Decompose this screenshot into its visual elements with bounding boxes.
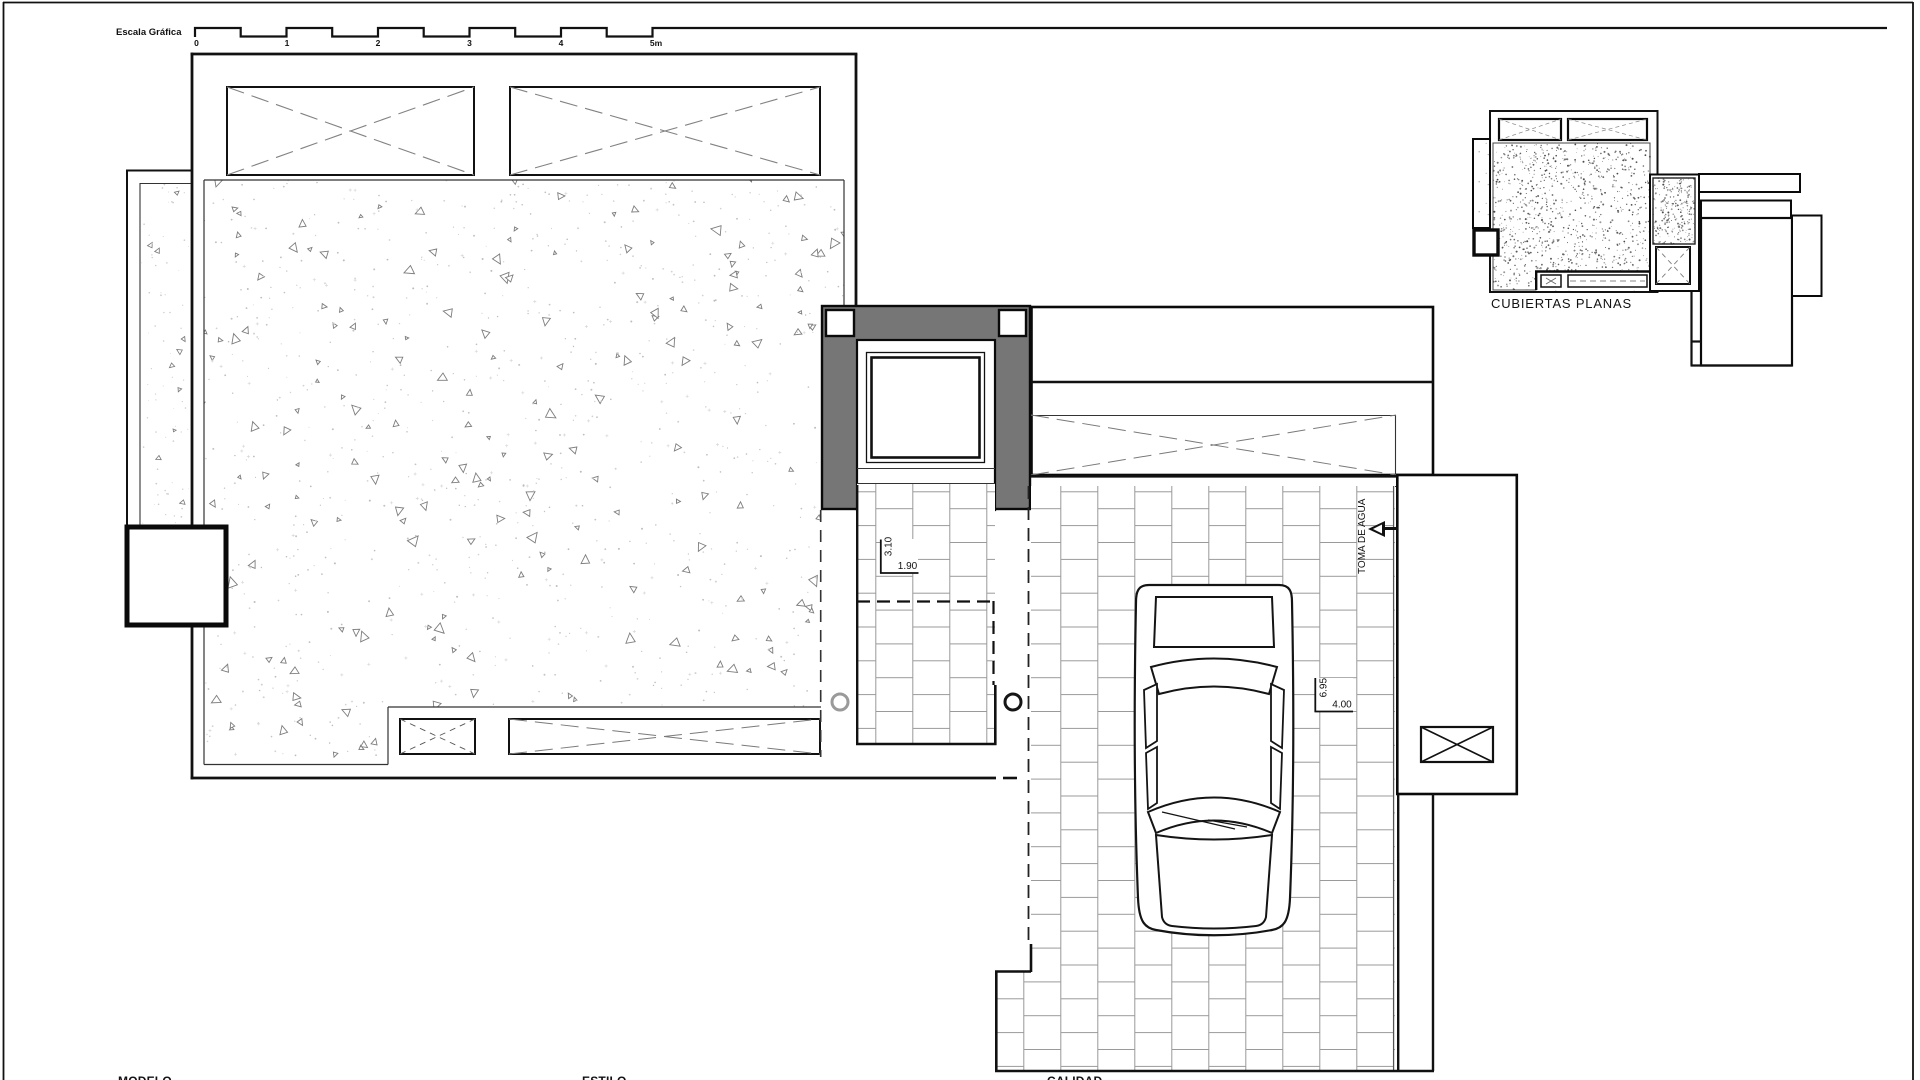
svg-text:2: 2 xyxy=(376,38,381,48)
svg-text:1: 1 xyxy=(285,38,290,48)
svg-text:0: 0 xyxy=(194,38,199,48)
svg-text:4.00: 4.00 xyxy=(1332,700,1352,711)
svg-text:Escala Gráfica: Escala Gráfica xyxy=(116,27,182,38)
svg-text:3: 3 xyxy=(467,38,472,48)
svg-text:TOMA DE AGUA: TOMA DE AGUA xyxy=(1357,498,1368,574)
svg-text:5m: 5m xyxy=(650,38,663,48)
svg-text:3.10: 3.10 xyxy=(884,536,895,556)
svg-text:CUBIERTAS PLANAS: CUBIERTAS PLANAS xyxy=(1491,296,1632,311)
svg-text:1.90: 1.90 xyxy=(898,561,918,572)
svg-text:6.95: 6.95 xyxy=(1319,678,1330,698)
svg-text:ESTILO: ESTILO xyxy=(582,1074,627,1080)
svg-text:MODELO: MODELO xyxy=(118,1074,172,1080)
svg-text:CALIDAD: CALIDAD xyxy=(1047,1074,1103,1080)
svg-text:4: 4 xyxy=(559,38,564,48)
